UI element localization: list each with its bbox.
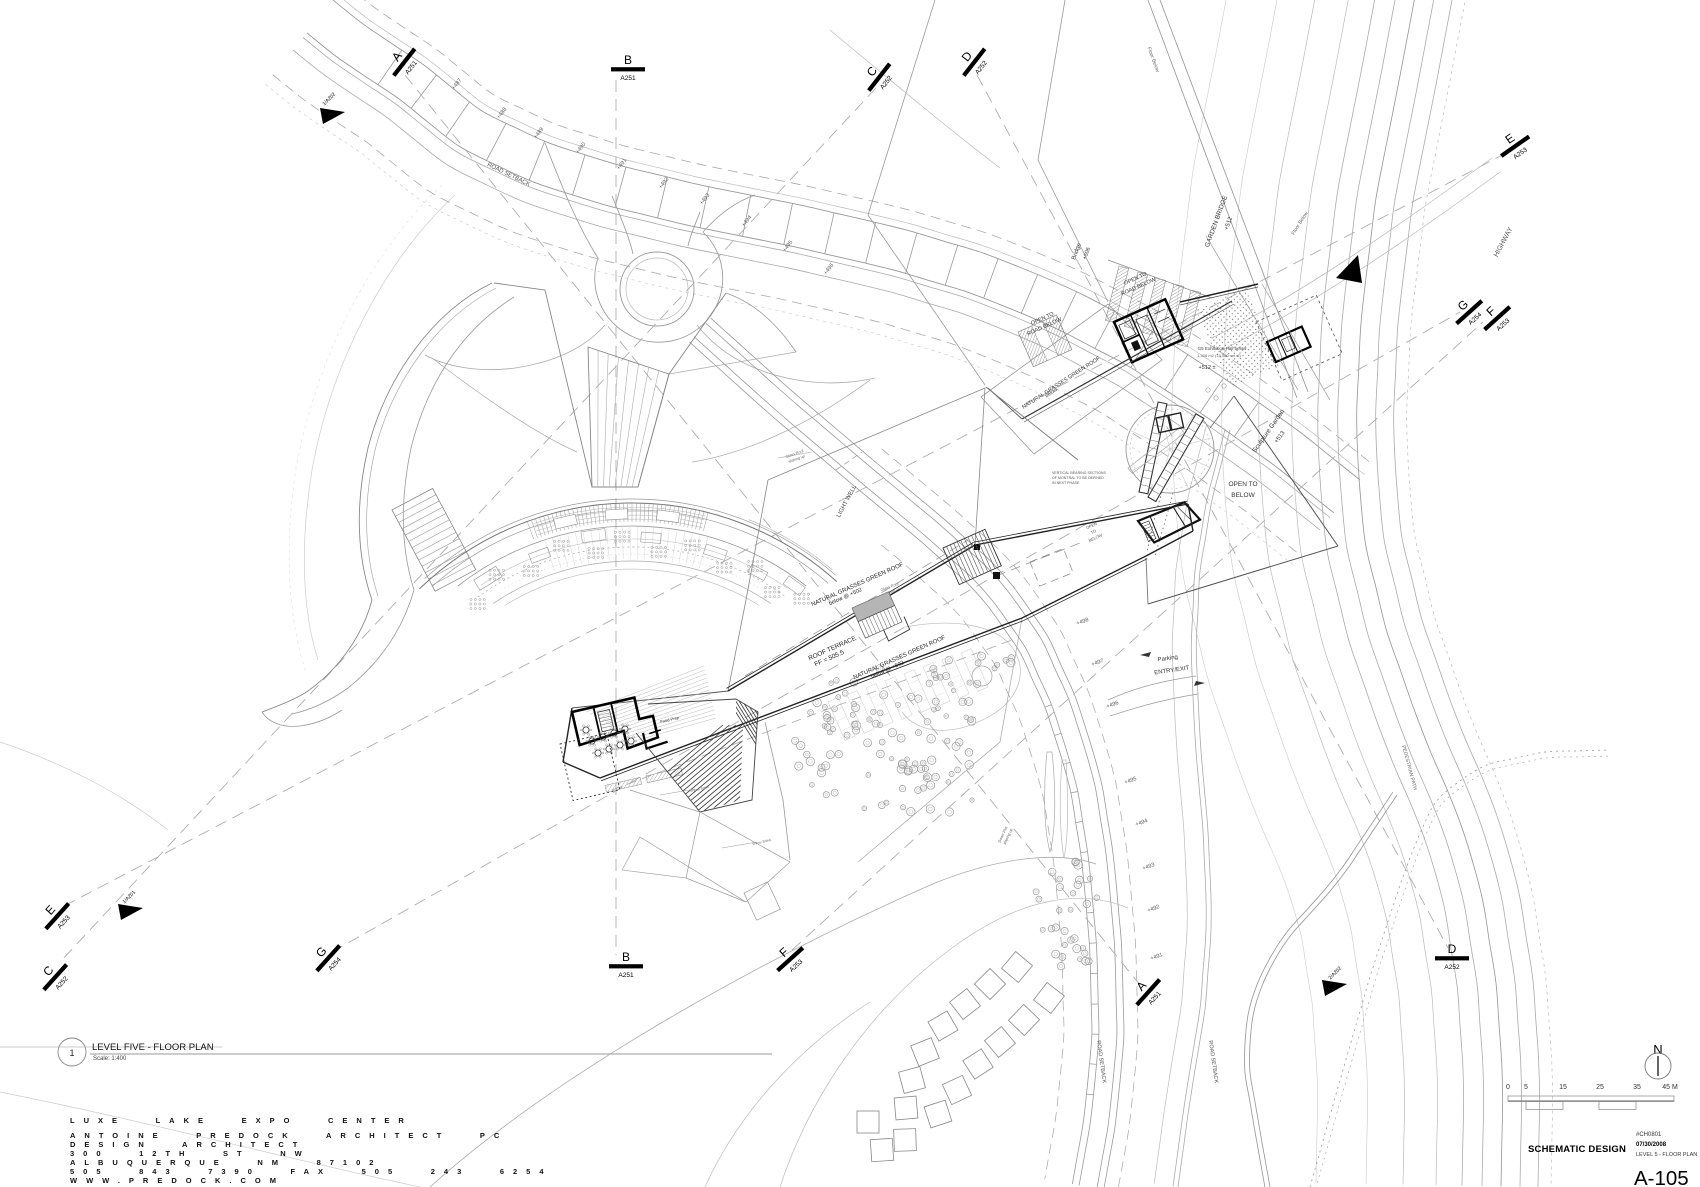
svg-text:A252: A252 [1444, 964, 1460, 971]
svg-text:07/30/2008: 07/30/2008 [1636, 1142, 1667, 1148]
svg-text:Scale: 1:400: Scale: 1:400 [93, 1056, 127, 1062]
svg-text:LUXE LAKE EXPO CENTER: LUXE LAKE EXPO CENTER [70, 1116, 413, 1125]
svg-text:45 M: 45 M [1662, 1084, 1678, 1091]
svg-text:15: 15 [1559, 1084, 1567, 1091]
svg-text:LEVEL 5 - FLOOR PLAN: LEVEL 5 - FLOOR PLAN [1636, 1152, 1697, 1158]
svg-text:BELOW: BELOW [1231, 492, 1255, 499]
svg-text:IN NEXT PHASE: IN NEXT PHASE [1052, 481, 1080, 485]
svg-text:OPEN TO: OPEN TO [1228, 481, 1257, 488]
svg-text:300 12TH ST NW: 300 12TH ST NW [70, 1149, 311, 1158]
svg-text:1,406 m2 (15,000 net sf): 1,406 m2 (15,000 net sf) [1197, 353, 1241, 358]
svg-text:+512 ±: +512 ± [1199, 365, 1216, 371]
svg-text:35: 35 [1633, 1084, 1641, 1091]
svg-text:A251: A251 [618, 972, 634, 979]
svg-text:A-105: A-105 [1634, 1167, 1689, 1187]
svg-text:0: 0 [1506, 1084, 1510, 1091]
svg-text:A251: A251 [620, 75, 636, 82]
svg-text:LEVEL FIVE - FLOOR PLAN: LEVEL FIVE - FLOOR PLAN [92, 1042, 214, 1053]
svg-text:B: B [624, 53, 632, 67]
svg-text:N: N [1653, 1042, 1662, 1057]
svg-text:B: B [622, 950, 630, 964]
svg-text:#CH0801: #CH0801 [1636, 1132, 1662, 1138]
svg-text:WWW.PREDOCK.COM: WWW.PREDOCK.COM [70, 1176, 285, 1185]
svg-text:OF MONTRAL TO BE DEFINED: OF MONTRAL TO BE DEFINED [1052, 476, 1104, 480]
svg-text:DESIGN ARCHITECT: DESIGN ARCHITECT [70, 1140, 306, 1149]
svg-text:ALBUQUERQUE NM 87102: ALBUQUERQUE NM 87102 [70, 1158, 382, 1167]
svg-text:5: 5 [1524, 1084, 1528, 1091]
svg-text:SCHEMATIC DESIGN: SCHEMATIC DESIGN [1528, 1144, 1626, 1155]
svg-text:D: D [1448, 942, 1457, 956]
svg-text:ANTOINE PREDOCK ARCHITECT PC: ANTOINE PREDOCK ARCHITECT PC [70, 1131, 508, 1140]
svg-text:G5 Exhibition Hall below: G5 Exhibition Hall below [1198, 346, 1248, 351]
svg-text:1: 1 [69, 1048, 74, 1058]
svg-text:505 843 7390 FAX 505 243 6254: 505 843 7390 FAX 505 243 6254 [70, 1167, 553, 1176]
svg-text:25: 25 [1596, 1084, 1604, 1091]
svg-text:VERTICAL BEARING SECTIONS: VERTICAL BEARING SECTIONS [1052, 471, 1107, 475]
